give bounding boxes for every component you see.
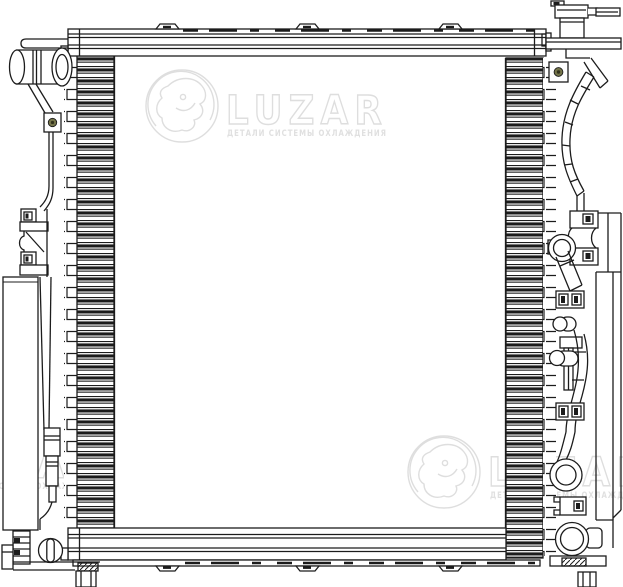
pipe-end-arc xyxy=(10,50,25,84)
outlet-pipe xyxy=(556,523,603,556)
right-bolt-mount xyxy=(549,62,568,82)
top-tank xyxy=(61,24,551,56)
core-left-fin-column xyxy=(64,56,114,528)
drain-screw-slot xyxy=(47,539,54,562)
watermark-tagline-text: ДЕТАЛИ СИСТЕМЫ ОХЛАЖДЕНИЯ xyxy=(227,129,387,139)
right-clip-292 xyxy=(556,291,584,308)
top-bracket-plate xyxy=(546,38,621,49)
luzar-dragon-logo-icon xyxy=(408,436,480,508)
radiator-cap xyxy=(555,5,588,18)
radiator-technical-drawing: LUZAR ДЕТАЛИ СИСТЕМЫ ОХЛАЖДЕНИЯ LUZAR ДЕ… xyxy=(0,0,623,587)
bracket-flap xyxy=(566,49,608,88)
left-castellated-edge xyxy=(64,56,77,528)
neck-body xyxy=(560,18,584,38)
mount-foot xyxy=(578,572,596,587)
left-clip-bracket xyxy=(20,209,49,277)
right-upper-hose xyxy=(562,72,594,212)
section-hatch xyxy=(78,563,98,571)
core-right-fin-column xyxy=(506,58,556,558)
watermark-top-center: LUZAR ДЕТАЛИ СИСТЕМЫ ОХЛАЖДЕНИЯ xyxy=(146,70,388,142)
luzar-dragon-logo-icon xyxy=(146,70,218,142)
bottom-mounting-tabs xyxy=(156,566,462,571)
left-bolt-mount xyxy=(44,113,61,132)
bottom-right-bracket xyxy=(550,556,606,587)
watermark-brand-text: LUZAR xyxy=(226,88,388,134)
right-clip-405 xyxy=(556,403,584,420)
inlet-pipe xyxy=(10,39,73,113)
right-fin-hatching xyxy=(506,58,543,558)
drawing-canvas: LUZAR ДЕТАЛИ СИСТЕМЫ ОХЛАЖДЕНИЯ LUZAR ДЕ… xyxy=(0,0,623,587)
right-grommet-lower xyxy=(550,459,582,491)
left-side-panel xyxy=(3,277,51,530)
section-hatch xyxy=(562,558,586,566)
pipe-opening xyxy=(56,55,68,80)
pipe-strut xyxy=(28,84,53,113)
drain-valve xyxy=(39,539,63,563)
left-fin-hatching xyxy=(77,56,114,528)
mount-foot xyxy=(76,571,96,587)
bottom-tank xyxy=(61,528,540,571)
top-mounting-tabs xyxy=(156,24,462,29)
left-hanger-rod xyxy=(40,132,53,211)
